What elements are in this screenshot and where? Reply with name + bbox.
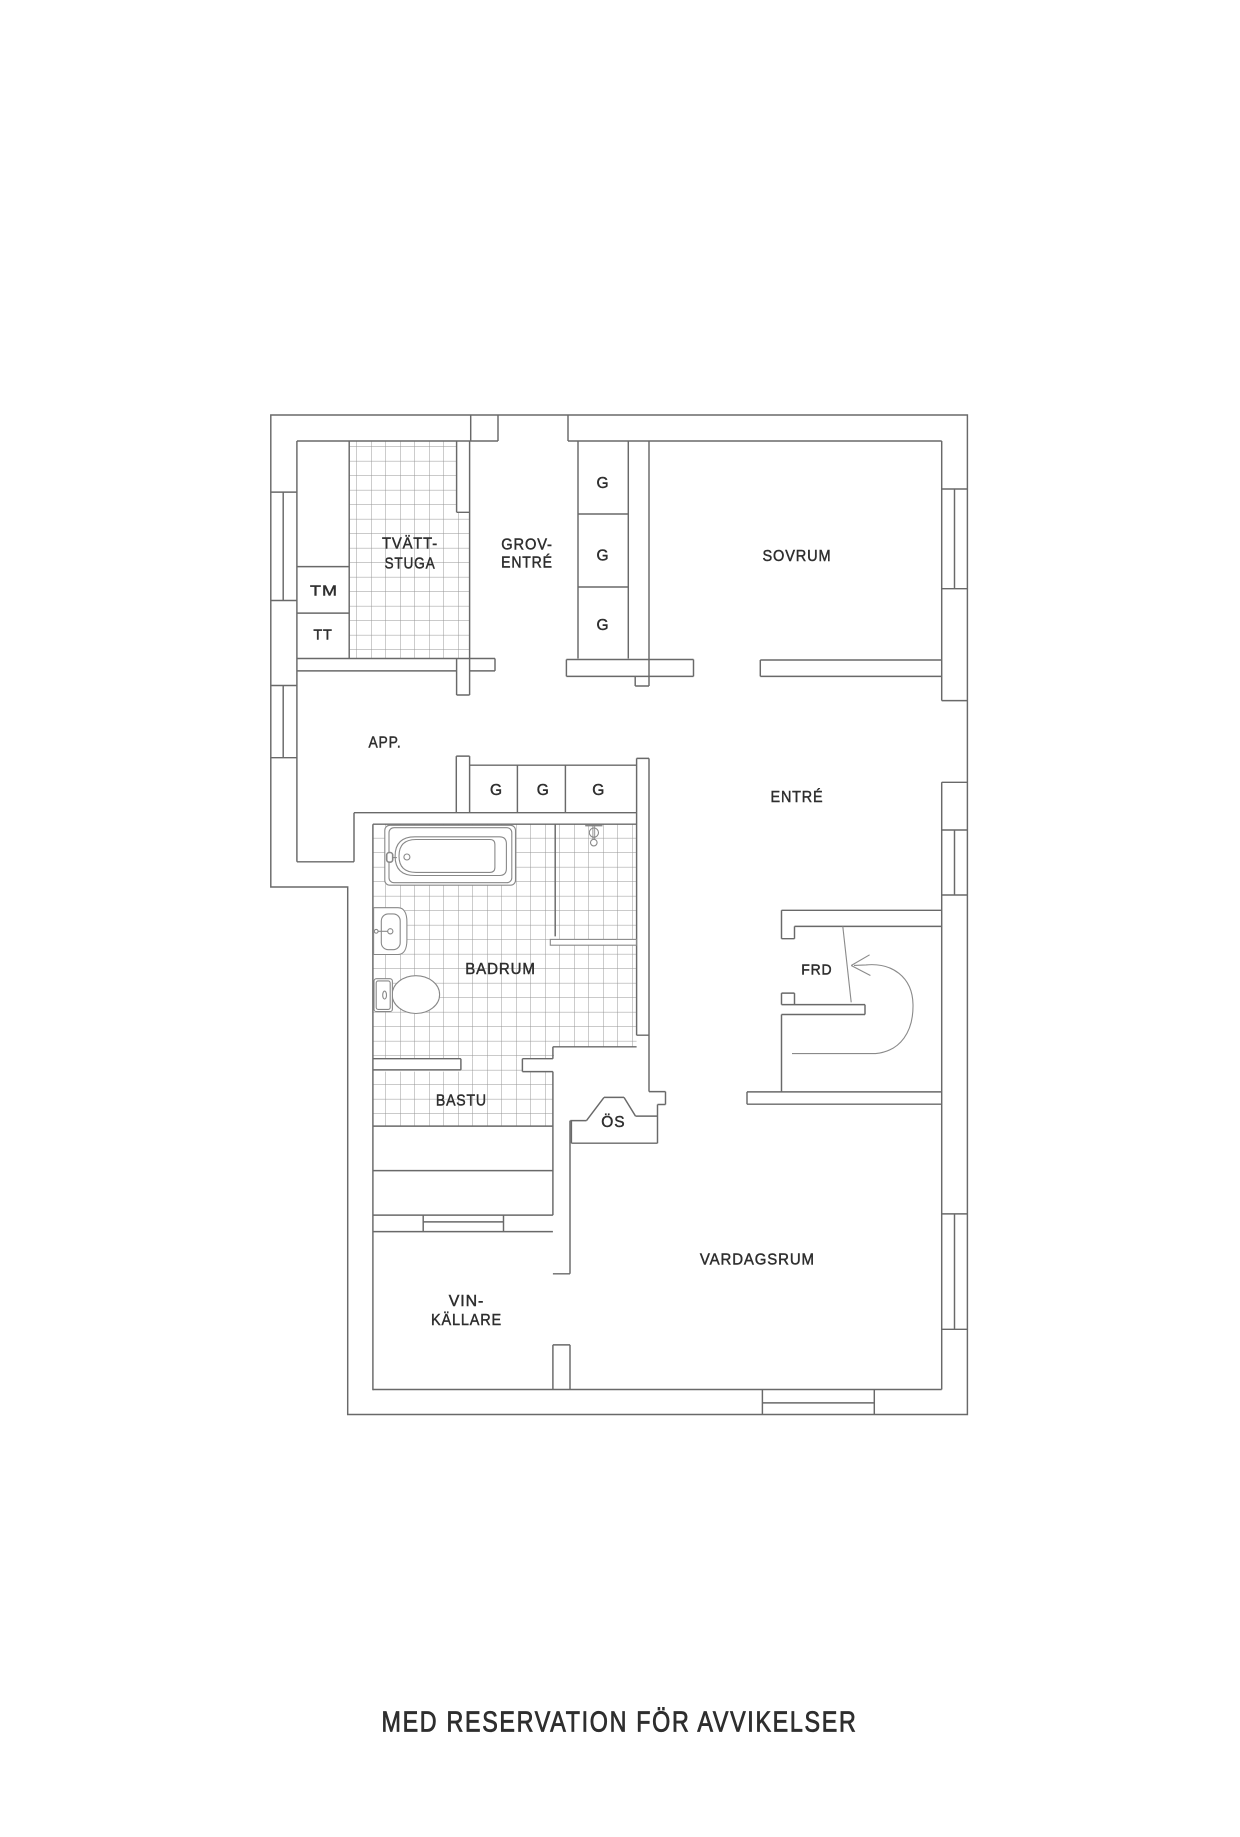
svg-text:TM: TM [310, 583, 338, 599]
svg-text:SOVRUM: SOVRUM [763, 548, 832, 565]
svg-text:TT: TT [313, 628, 332, 644]
svg-text:G: G [597, 548, 610, 565]
svg-text:TVÄTT-: TVÄTT- [382, 536, 438, 553]
svg-text:VIN-: VIN- [449, 1293, 485, 1310]
svg-text:ÖS: ÖS [601, 1113, 625, 1131]
svg-text:KÄLLARE: KÄLLARE [431, 1312, 502, 1329]
svg-text:G: G [592, 782, 605, 799]
svg-text:ENTRÉ: ENTRÉ [771, 789, 824, 806]
svg-text:VARDAGSRUM: VARDAGSRUM [700, 1251, 815, 1268]
svg-text:G: G [537, 782, 550, 799]
svg-text:STUGA: STUGA [385, 556, 436, 573]
svg-text:G: G [490, 782, 503, 799]
svg-text:ENTRÉ: ENTRÉ [501, 554, 553, 571]
svg-text:APP.: APP. [369, 735, 402, 752]
svg-text:FRD: FRD [801, 963, 832, 979]
svg-text:GROV-: GROV- [501, 537, 553, 554]
svg-text:MED RESERVATION FÖR AVVIKELSER: MED RESERVATION FÖR AVVIKELSER [382, 1707, 858, 1739]
svg-text:BASTU: BASTU [436, 1093, 487, 1110]
svg-text:BADRUM: BADRUM [465, 961, 536, 978]
svg-text:G: G [597, 475, 610, 492]
svg-text:G: G [597, 617, 610, 634]
